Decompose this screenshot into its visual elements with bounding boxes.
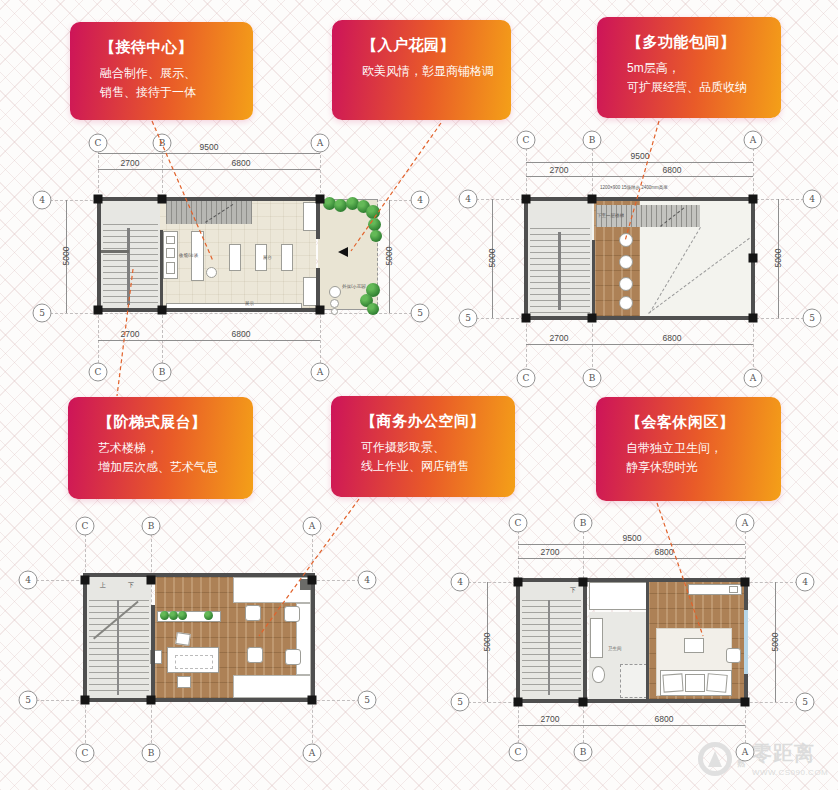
grid-bubble: 4 [358,571,377,590]
armchair [285,649,301,665]
column [81,696,90,705]
grid-bubble: C [517,369,536,388]
dim-line [518,725,745,726]
grid-bubble: B [583,369,602,388]
display-table [229,244,241,271]
callout-line: 增加层次感、艺术气息 [98,458,241,477]
grid-bubble: 4 [459,190,478,209]
grid-bubble: 5 [411,304,430,323]
dim-label: 5000 [384,247,394,266]
grid-bubble: 4 [796,573,815,592]
plant-icon [160,611,169,620]
room-label: 收银/洽谈 [179,252,198,257]
dim-label: 5000 [487,249,497,268]
column [749,254,758,263]
plant-icon [204,611,213,620]
room-label: 展台 [263,254,272,259]
grid-bubble: B [574,743,593,762]
grid-bubble: A [744,131,763,150]
callout-title: 【入户花园】 [362,36,499,55]
plant-icon [178,611,187,620]
callout-guest-lounge: 【会客休闲区】 自带独立卫生间， 静享休憩时光 [596,397,781,501]
room-label: 下 [128,581,134,590]
armchair [726,648,741,663]
dim-label: 9500 [631,151,650,161]
grid-bubble: C [509,743,528,762]
grid-bubble: B [142,744,161,763]
shower [620,664,647,698]
grid-bubble: A [744,369,763,388]
wall [83,573,315,577]
tree-icon [334,199,347,212]
armchair [284,606,300,622]
tree-icon [367,303,379,315]
armchair [245,605,261,621]
stair-rail [548,600,550,695]
round-table [619,277,633,291]
chair [175,632,191,646]
column [588,314,597,323]
callout-line: 静享休憩时光 [626,458,769,477]
chair [177,676,191,688]
grid-bubble: 4 [803,190,822,209]
column [147,576,156,585]
room-label: 展示 [245,300,254,305]
grid-bubble: 5 [451,693,470,712]
callout-line: 5m层高， [627,59,769,78]
wall [83,573,87,702]
grid-bubble: 5 [33,304,52,323]
wall [583,582,587,699]
column [308,576,317,585]
dim-label: 5000 [770,633,780,652]
column [514,698,523,707]
column [158,306,167,315]
callout-business-office: 【商务办公空间】 可作摄影取景、 线上作业、网店销售 [331,396,515,497]
wall [524,197,755,201]
grid-bubble: C [76,517,95,536]
grid-bubble: C [509,514,528,533]
column [749,314,758,323]
desk-detail [175,655,213,669]
wall [524,316,755,320]
dim-label: 2700 [121,329,140,339]
toilet-icon [592,666,605,683]
display-table [281,244,293,271]
vanity [590,618,603,658]
callout-title: 【会客休闲区】 [626,413,769,432]
wall [97,197,101,312]
grid-bubble: A [736,514,755,533]
grid-bubble: C [517,131,536,150]
round-table [619,255,633,269]
grid-bubble: 5 [803,309,822,328]
stair-note: 1200×900 15级踏步 2400mm高度 [600,184,668,189]
wall [516,578,748,582]
tree-icon [366,205,380,219]
stairs [522,600,581,695]
dim-label: 6800 [655,547,674,557]
dim-label: 5000 [482,633,492,652]
wall [151,605,155,698]
wall [83,698,315,702]
entry-arrow-icon [333,247,348,257]
dim-label: 9500 [623,533,642,543]
column [514,578,523,587]
dim-label: 2700 [121,158,140,168]
grid-bubble: 5 [459,309,478,328]
cabinet [303,277,317,306]
column [741,578,750,587]
round-table [619,296,633,310]
grid-bubble: 4 [451,573,470,592]
dim-line [518,558,745,559]
grid-bubble: 4 [411,191,430,210]
page: C B A C B A 4 5 4 5 9500 2700 6800 2700 … [0,0,838,790]
grid-bubble: 5 [796,693,815,712]
grid-bubble: C [76,744,95,763]
patio-table [329,286,341,298]
callout-line: 销售、接待于一体 [100,83,241,102]
coffee-table [684,638,704,653]
wall [97,197,323,201]
dim-label: 6800 [232,158,251,168]
room-label: 下至一层楼梯 [597,212,624,217]
dim-label: 6800 [232,329,251,339]
dim-line [518,544,745,545]
column [588,195,597,204]
grid-bubble: A [303,517,322,536]
column [522,195,531,204]
grid-bubble: 4 [19,571,38,590]
callout-stepped-display: 【阶梯式展台】 艺术楼梯， 增加层次感、艺术气息 [68,397,253,499]
column [741,698,750,707]
patio-chair [331,308,338,315]
callout-title: 【接待中心】 [100,38,241,57]
grid-bubble: 5 [358,691,377,710]
callout-line: 可作摄影取景、 [361,438,503,457]
patio-chair [330,299,339,308]
dim-label: 5000 [61,247,71,266]
cabinet [166,262,175,274]
grid-bubble: B [574,514,593,533]
room-label: 外摆/小花园 [342,283,366,288]
column [308,696,317,705]
column [94,195,103,204]
callout-reception-center: 【接待中心】 融合制作、展示、 销售、接待于一体 [70,22,253,120]
grid-bubble: B [153,363,172,382]
sink-icon [166,248,175,258]
wall [646,582,649,699]
dim-label: 2700 [550,165,569,175]
callout-title: 【阶梯式展台】 [98,413,241,432]
column [94,306,103,315]
sofa-cushion [685,674,705,692]
grid-bubble: A [303,744,322,763]
grid-bubble: B [142,517,161,536]
round-table [619,233,633,247]
tree-icon [370,230,382,242]
grid-bubble: A [311,363,330,382]
wall [311,573,315,702]
grid-bubble: 4 [33,191,52,210]
sink-icon [166,236,175,244]
wall [592,240,595,316]
grid-bubble: B [583,131,602,150]
armchair [247,647,263,663]
column [147,696,156,705]
watermark-site: WWW.CS090.COM [752,768,828,777]
wall [516,699,748,703]
column [158,195,167,204]
wall [524,197,528,320]
callout-line: 线上作业、网店销售 [361,457,503,476]
display-platform [233,675,311,698]
column [316,306,325,315]
column [579,698,588,707]
callout-line: 自带独立卫生间， [626,439,769,458]
room-label: 卫生间 [608,645,622,650]
closet [589,582,648,610]
callout-line: 融合制作、展示、 [100,64,241,83]
dim-label: 2700 [550,333,569,343]
grid-bubble: 5 [19,691,38,710]
grid-bubble: A [736,743,755,762]
tv-icon [729,586,738,593]
watermark-name: 零距离 [752,740,828,767]
grid-bubble: B [153,134,172,153]
cabinet [303,202,317,231]
dim-label: 5000 [773,249,783,268]
column [749,195,758,204]
callout-line: 欧美风情，彰显商铺格调 [362,62,499,81]
callout-multifunction-room: 【多功能包间】 5m层高， 可扩展经营、品质收纳 [597,17,781,118]
column [579,578,588,587]
callout-line: 可扩展经营、品质收纳 [627,78,769,97]
callout-entry-garden: 【入户花园】 欧美风情，彰显商铺格调 [332,20,511,120]
room-label: 下 [570,586,576,595]
dim-label: 2700 [541,714,560,724]
grid-bubble: C [89,363,108,382]
wall [97,308,323,312]
dim-label: 6800 [663,333,682,343]
sofa-cushion [662,673,683,692]
dim-label: 2700 [541,547,560,557]
watermark: 常熟 零距离 WWW.CS090.COM [698,740,828,777]
watermark-logo-icon [698,742,732,776]
grid-bubble: C [89,134,108,153]
grid-bubble: A [311,134,330,153]
callout-title: 【商务办公空间】 [361,412,503,431]
dim-label: 6800 [655,714,674,724]
window [744,610,748,674]
plant-icon [169,611,178,620]
column [316,195,325,204]
dim-label: 6800 [663,165,682,175]
sofa-cushion [706,673,727,693]
callout-line: 艺术楼梯， [98,439,241,458]
column [522,314,531,323]
callout-title: 【多功能包间】 [627,33,769,52]
dim-label: 9500 [200,142,219,152]
column [81,576,90,585]
wall [160,230,163,312]
wall [516,578,520,703]
room-label: 上 [100,581,106,590]
round-table [206,267,217,278]
